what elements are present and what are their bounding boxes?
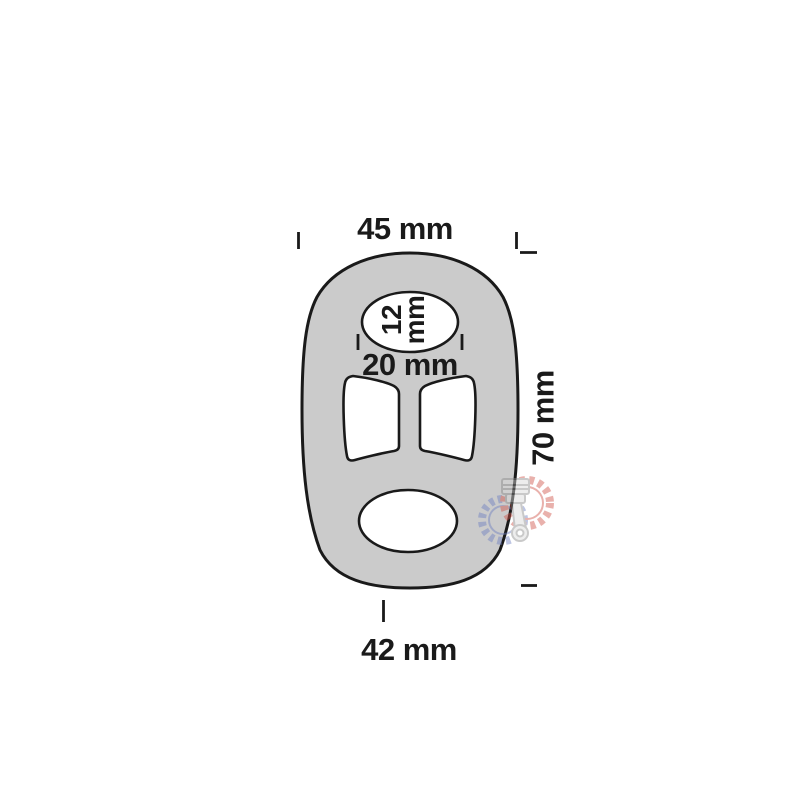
dim-label-bottom-width: 42 mm xyxy=(361,634,457,665)
left-slot-hole xyxy=(344,376,399,461)
dim-label-height: 70 mm xyxy=(528,370,559,466)
dim-label-inner-hole: 12 mm xyxy=(381,296,427,345)
bottom-hole xyxy=(359,490,457,552)
part-drawing xyxy=(0,0,800,800)
diagram-canvas: 45 mm 12 mm 20 mm 70 mm 42 mm xyxy=(0,0,800,800)
dim-label-top-width: 45 mm xyxy=(357,213,453,244)
dim-label-slot-width: 20 mm xyxy=(362,349,458,380)
right-slot-hole xyxy=(420,376,475,461)
